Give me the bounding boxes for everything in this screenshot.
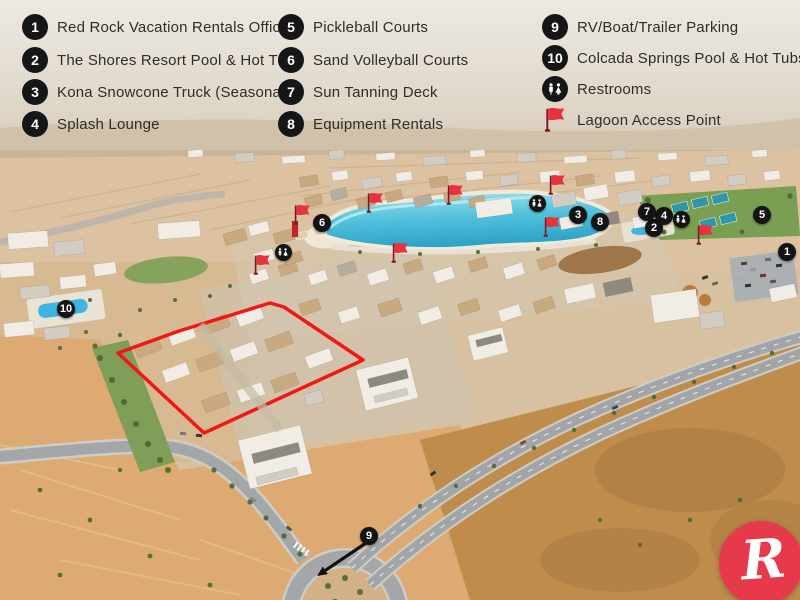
legend-item: 8Equipment Rentals bbox=[278, 111, 443, 137]
legend-item: 4Splash Lounge bbox=[22, 111, 160, 137]
legend-label: Splash Lounge bbox=[57, 116, 160, 133]
legend-item: 2The Shores Resort Pool & Hot Tub bbox=[22, 47, 294, 73]
lagoon-access-flag-marker bbox=[253, 254, 271, 281]
legend-label: Sand Volleyball Courts bbox=[313, 52, 468, 69]
legend-number-badge: 5 bbox=[278, 14, 304, 40]
legend-label: Lagoon Access Point bbox=[577, 112, 721, 129]
legend-number-badge: 4 bbox=[22, 111, 48, 137]
restroom-marker bbox=[673, 211, 690, 228]
legend-label: RV/Boat/Trailer Parking bbox=[577, 19, 738, 36]
legend-number-badge: 10 bbox=[542, 45, 568, 71]
legend-item: 1Red Rock Vacation Rentals Office bbox=[22, 14, 289, 40]
lagoon-flag-icon bbox=[446, 184, 464, 206]
map-marker-4: 4 bbox=[655, 207, 673, 225]
map-marker-6: 6 bbox=[313, 214, 331, 232]
lagoon-access-flag-marker bbox=[366, 192, 384, 219]
legend-number-badge: 3 bbox=[22, 79, 48, 105]
legend-label: Red Rock Vacation Rentals Office bbox=[57, 19, 289, 36]
legend-label: Equipment Rentals bbox=[313, 116, 443, 133]
map-marker-3: 3 bbox=[569, 206, 587, 224]
lagoon-flag-icon bbox=[391, 242, 409, 264]
restroom-marker bbox=[529, 195, 546, 212]
legend-item: 5Pickleball Courts bbox=[278, 14, 428, 40]
map-marker-10: 10 bbox=[57, 300, 75, 318]
restroom-icon bbox=[547, 83, 563, 95]
legend-restroom-badge bbox=[542, 76, 568, 102]
lagoon-flag-icon bbox=[543, 216, 561, 238]
legend-item: 3Kona Snowcone Truck (Seasonal) bbox=[22, 79, 290, 105]
brand-logo: R bbox=[719, 521, 800, 600]
lagoon-access-flag-marker bbox=[446, 184, 464, 211]
legend-label: The Shores Resort Pool & Hot Tub bbox=[57, 52, 294, 69]
legend-item: Lagoon Access Point bbox=[542, 107, 721, 133]
lagoon-flag-icon bbox=[544, 107, 566, 133]
legend-label: Kona Snowcone Truck (Seasonal) bbox=[57, 84, 290, 101]
lagoon-access-flag-marker bbox=[293, 204, 311, 231]
legend-label: Restrooms bbox=[577, 81, 651, 98]
legend-number-badge: 7 bbox=[278, 79, 304, 105]
map-marker-7: 7 bbox=[638, 203, 656, 221]
lagoon-access-flag-marker bbox=[548, 174, 566, 201]
legend-number-badge: 2 bbox=[22, 47, 48, 73]
legend-item: Restrooms bbox=[542, 76, 651, 102]
lagoon-access-flag-marker bbox=[391, 242, 409, 269]
legend-number-badge: 6 bbox=[278, 47, 304, 73]
map-marker-8: 8 bbox=[591, 213, 609, 231]
legend-number-badge: 8 bbox=[278, 111, 304, 137]
legend-label: Sun Tanning Deck bbox=[313, 84, 438, 101]
legend-flag-badge bbox=[542, 107, 568, 133]
map-marker-9: 9 bbox=[360, 527, 378, 545]
restroom-icon bbox=[277, 248, 289, 257]
restroom-icon bbox=[531, 199, 543, 208]
brand-logo-letter: R bbox=[739, 531, 788, 588]
restroom-marker bbox=[275, 244, 292, 261]
map-marker-1: 1 bbox=[778, 243, 796, 261]
lagoon-flag-icon bbox=[548, 174, 566, 196]
legend-item: 6Sand Volleyball Courts bbox=[278, 47, 468, 73]
lagoon-access-flag-marker bbox=[696, 224, 714, 251]
lagoon-flag-icon bbox=[253, 254, 271, 276]
legend-number-badge: 9 bbox=[542, 14, 568, 40]
lagoon-flag-icon bbox=[293, 204, 311, 226]
map-marker-5: 5 bbox=[753, 206, 771, 224]
legend-label: Pickleball Courts bbox=[313, 19, 428, 36]
lagoon-flag-icon bbox=[366, 192, 384, 214]
legend-label: Colcada Springs Pool & Hot Tubs bbox=[577, 50, 800, 67]
legend-item: 9RV/Boat/Trailer Parking bbox=[542, 14, 738, 40]
legend-item: 10Colcada Springs Pool & Hot Tubs bbox=[542, 45, 800, 71]
lagoon-access-flag-marker bbox=[543, 216, 561, 243]
lagoon-flag-icon bbox=[696, 224, 714, 246]
legend-number-badge: 1 bbox=[22, 14, 48, 40]
legend-item: 7Sun Tanning Deck bbox=[278, 79, 438, 105]
restroom-icon bbox=[675, 215, 687, 224]
resort-map: 12345678910 1Red Rock Vacation Rentals O… bbox=[0, 0, 800, 600]
